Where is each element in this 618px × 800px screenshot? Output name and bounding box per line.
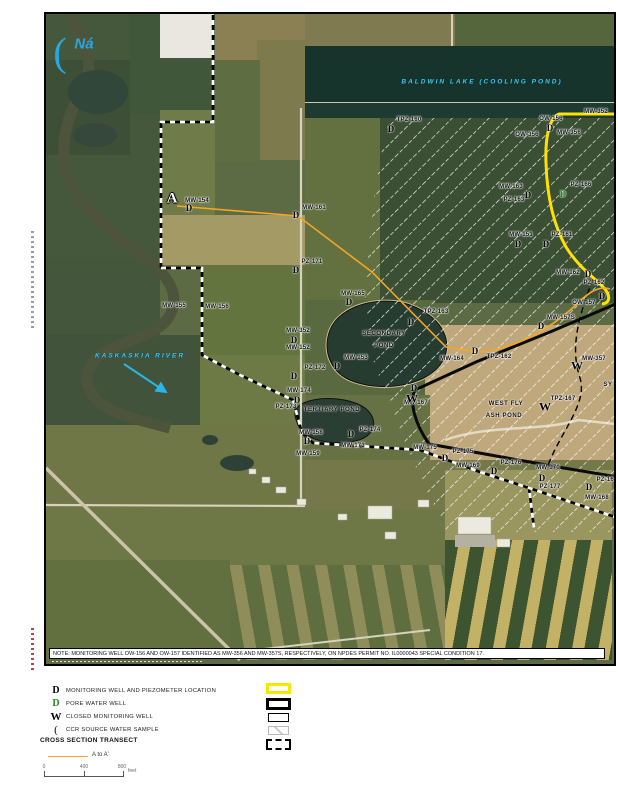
well-label: PZ-173 xyxy=(276,404,297,410)
well-label: MW-152 xyxy=(286,345,310,351)
legend-label: CLOSED MONITORING WELL xyxy=(66,714,153,720)
well-label: MW-169 xyxy=(456,463,480,469)
monitoring-well-marker: D xyxy=(538,321,545,331)
aerial-imagery: A ( Ná MW-154DMW-161DPZ-171DMW-155MW-156… xyxy=(44,12,616,666)
area-label: SECONDARY xyxy=(362,331,406,337)
monitoring-well-marker: D xyxy=(442,453,449,463)
well-label: PZ-177 xyxy=(540,484,561,490)
ccr-source-water-sample-label: Ná xyxy=(74,36,93,53)
closed-well-marker: W xyxy=(406,392,418,407)
scale-bar xyxy=(44,771,124,777)
monitoring-well-marker: D xyxy=(346,297,353,307)
well-label: OW-157 xyxy=(572,300,595,306)
well-label: PZ-172 xyxy=(305,365,326,371)
map-sheet: A ( Ná MW-154DMW-161DPZ-171DMW-155MW-156… xyxy=(0,0,618,800)
legend: DMONITORING WELL AND PIEZOMETER LOCATION… xyxy=(0,680,618,800)
monitoring-well-marker: D xyxy=(334,361,341,371)
legend-label: CCR SOURCE WATER SAMPLE xyxy=(66,727,159,733)
monitoring-well-marker: D xyxy=(491,466,498,476)
well-label: MW-356 xyxy=(557,130,581,136)
well-label: MW-153 xyxy=(344,355,368,361)
map-canvas[interactable]: A ( Ná MW-154DMW-161DPZ-171DMW-155MW-156… xyxy=(44,12,616,666)
scale-unit: feet xyxy=(128,768,136,774)
legend-label: MONITORING WELL AND PIEZOMETER LOCATION xyxy=(66,688,216,694)
monitoring-well-marker: D xyxy=(547,123,554,133)
well-label: MW-352 xyxy=(584,109,608,115)
area-label: TERTIARY POND xyxy=(304,407,360,413)
legend-swatch-yellow-outline xyxy=(266,683,291,694)
scale-tick: 0 xyxy=(43,764,46,770)
well-label: MW-170 xyxy=(536,465,560,471)
map-annotations: A ( Ná MW-154DMW-161DPZ-171DMW-155MW-156… xyxy=(44,12,616,666)
monitoring-well-marker: D xyxy=(304,436,311,446)
legend-item: (CCR SOURCE WATER SAMPLE xyxy=(46,723,286,736)
monitoring-well-marker: D xyxy=(525,190,532,200)
well-label: PZ-161 xyxy=(552,232,573,238)
area-label: ASH POND xyxy=(486,413,522,419)
well-label: PZ-176 xyxy=(501,460,522,466)
well-label: MW-158 xyxy=(299,430,323,436)
ccr-source-water-sample-icon: ( xyxy=(53,29,66,76)
monitoring-well-marker: D xyxy=(186,203,193,213)
pore-water-well-marker: D xyxy=(560,189,567,199)
monitoring-well-marker: D xyxy=(293,210,300,220)
scale-tick: 800 xyxy=(118,764,126,770)
monitoring-well-marker: D xyxy=(543,239,550,249)
file-path-text xyxy=(52,661,202,663)
area-label: SY xyxy=(603,382,612,388)
monitoring-well-marker: D xyxy=(472,346,479,356)
monitoring-well-marker: D xyxy=(586,482,593,492)
scale-tick: 400 xyxy=(80,764,88,770)
area-label: POND xyxy=(374,343,394,349)
monitoring-well-marker: D xyxy=(293,265,300,275)
legend-glyph: ( xyxy=(46,724,66,736)
water-label: BALDWIN LAKE (COOLING POND) xyxy=(401,79,562,86)
well-label: TPZ-162 xyxy=(487,354,512,360)
monitoring-well-marker: D xyxy=(515,239,522,249)
legend-item: DPORE WATER WELL xyxy=(46,697,286,710)
well-label: MW-174 xyxy=(287,388,311,394)
legend-swatch-thick-outline xyxy=(266,698,291,710)
well-label: MW-162 xyxy=(556,270,580,276)
cross-section-header: CROSS SECTION TRANSECT xyxy=(40,737,138,744)
monitoring-well-marker: D xyxy=(388,124,395,134)
monitoring-well-marker: D xyxy=(348,429,355,439)
well-label: MW-164 xyxy=(440,356,464,362)
monitoring-well-marker: D xyxy=(408,317,415,327)
well-label: MW-151 xyxy=(509,232,533,238)
monitoring-well-marker: D xyxy=(539,473,546,483)
legend-swatch-thin-outline xyxy=(268,713,289,722)
legend-item: WCLOSED MONITORING WELL xyxy=(46,710,286,723)
well-label: TPZ-167 xyxy=(551,396,576,402)
well-label: TPZ-160 xyxy=(397,117,422,123)
legend-swatch-hatched xyxy=(268,726,289,735)
area-label: WEST FLY xyxy=(489,401,524,407)
well-label: PZ-175 xyxy=(453,449,474,455)
transect-legend-label: A to A' xyxy=(92,752,109,758)
monitoring-well-marker: D xyxy=(291,335,298,345)
well-label: TPZ-163 xyxy=(424,309,449,315)
well-label: PZ-171 xyxy=(302,259,323,265)
monitoring-well-marker: D xyxy=(291,371,298,381)
well-label: PZ-164 xyxy=(597,477,616,483)
well-label: MW-173 xyxy=(341,443,365,449)
section-a-marker: A xyxy=(167,191,178,208)
margin-stamp-text xyxy=(31,628,34,670)
legend-glyph: W xyxy=(46,711,66,723)
water-label: KASKASKIA RIVER xyxy=(95,353,185,360)
legend-label: PORE WATER WELL xyxy=(66,701,126,707)
well-label: OW-156 xyxy=(539,116,562,122)
legend-items: DMONITORING WELL AND PIEZOMETER LOCATION… xyxy=(46,684,286,736)
well-label: MW-155 xyxy=(162,303,186,309)
well-label: MW-175 xyxy=(413,445,437,451)
well-label: MW-168 xyxy=(585,495,609,501)
well-label: PZ-166 xyxy=(571,182,592,188)
well-label: PZ-162 xyxy=(584,280,605,286)
well-label: MW-163 xyxy=(499,184,523,190)
monitoring-well-marker: D xyxy=(599,291,606,301)
well-label: MW-161 xyxy=(302,205,326,211)
well-label: OW-356 xyxy=(515,132,538,138)
well-label: MW-352 xyxy=(286,328,310,334)
margin-text xyxy=(31,228,34,328)
well-label: MW-159 xyxy=(296,451,320,457)
well-label: MW-165 xyxy=(341,291,365,297)
closed-well-marker: W xyxy=(539,400,551,415)
legend-glyph: D xyxy=(46,698,66,709)
well-label: MW-156 xyxy=(205,304,229,310)
well-label: PZ-174 xyxy=(360,427,381,433)
closed-well-marker: W xyxy=(571,359,583,374)
legend-item: DMONITORING WELL AND PIEZOMETER LOCATION xyxy=(46,684,286,697)
legend-swatch-dashed xyxy=(266,739,291,750)
transect-legend-line xyxy=(48,756,88,757)
monitoring-well-marker: D xyxy=(585,269,592,279)
well-label: MW-157S xyxy=(547,315,575,321)
well-label: MW-357 xyxy=(582,356,606,362)
well-label: PZ-163 xyxy=(504,197,525,203)
map-note: NOTE: MONITORING WELL OW-156 AND OW-157 … xyxy=(49,648,605,659)
legend-glyph: D xyxy=(46,685,66,696)
